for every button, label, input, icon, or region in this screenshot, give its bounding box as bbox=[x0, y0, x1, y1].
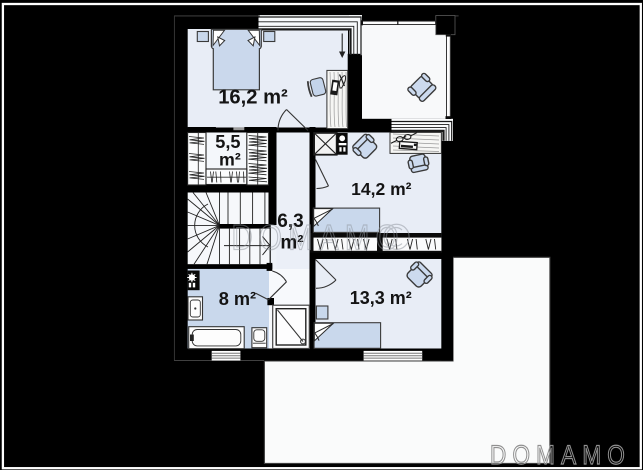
svg-text:13,3 m²: 13,3 m² bbox=[350, 288, 412, 308]
svg-text:DOMAMO: DOMAMO bbox=[232, 218, 405, 257]
svg-text:m²: m² bbox=[219, 150, 241, 170]
svg-text:14,2 m²: 14,2 m² bbox=[351, 179, 411, 199]
svg-text:8 m²: 8 m² bbox=[219, 289, 256, 309]
svg-text:16,2 m²: 16,2 m² bbox=[218, 86, 288, 108]
svg-text:DOMAMO: DOMAMO bbox=[490, 441, 631, 470]
